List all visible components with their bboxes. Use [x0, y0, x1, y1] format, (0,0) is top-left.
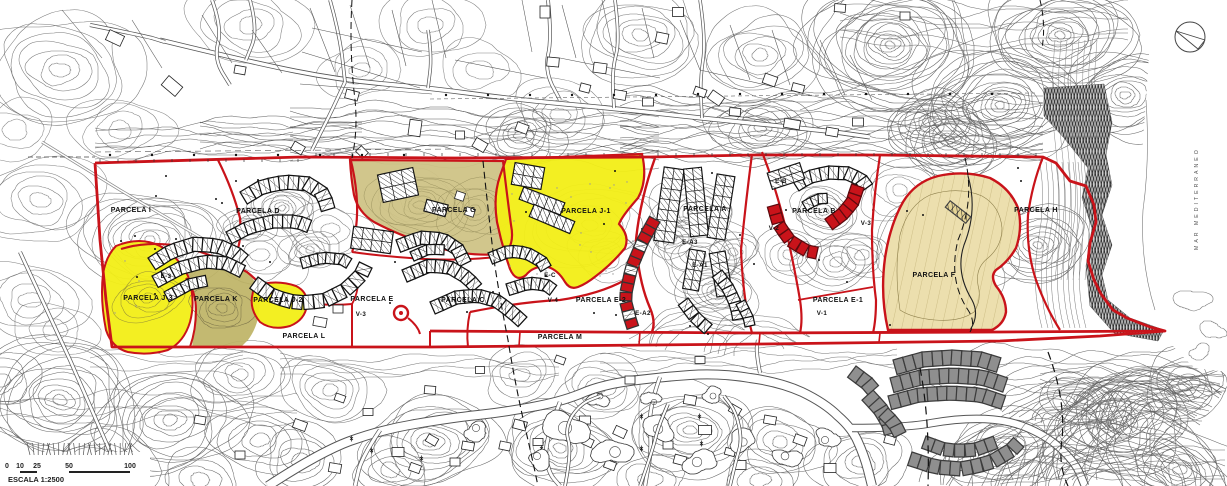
svg-text:PARCELA A: PARCELA A — [683, 206, 726, 213]
svg-text:ESCALA 1:2500: ESCALA 1:2500 — [8, 475, 64, 484]
svg-text:0: 0 — [5, 463, 9, 470]
svg-text:PARCELA L: PARCELA L — [283, 333, 326, 340]
svg-text:PARCELA E: PARCELA E — [350, 296, 393, 303]
svg-text:V-1: V-1 — [817, 310, 828, 317]
svg-text:PARCELA H: PARCELA H — [1014, 207, 1058, 214]
svg-text:E-B: E-B — [775, 178, 787, 185]
svg-text:PARCELA M: PARCELA M — [538, 334, 582, 341]
svg-text:PARCELA J-2: PARCELA J-2 — [253, 297, 303, 304]
svg-text:PARCELA F: PARCELA F — [913, 272, 956, 279]
svg-text:25: 25 — [33, 463, 41, 470]
svg-text:50: 50 — [65, 463, 73, 470]
svg-text:100: 100 — [124, 463, 136, 470]
svg-text:MAR MEDITERRANEO: MAR MEDITERRANEO — [1194, 147, 1200, 250]
svg-text:PARCELA I: PARCELA I — [111, 207, 152, 214]
svg-text:PARCELA J-1: PARCELA J-1 — [561, 208, 611, 215]
svg-text:V-2: V-2 — [769, 225, 780, 232]
svg-text:PARCELA E-1: PARCELA E-1 — [813, 297, 863, 304]
svg-text:V-3: V-3 — [861, 220, 872, 227]
svg-text:PARCELA C: PARCELA C — [441, 297, 485, 304]
svg-text:PARCELA J-3: PARCELA J-3 — [123, 295, 173, 302]
svg-text:PARCELA K: PARCELA K — [194, 296, 238, 303]
svg-text:E-A2: E-A2 — [635, 310, 651, 317]
svg-text:E-C: E-C — [544, 272, 556, 279]
svg-text:E-A1: E-A1 — [692, 262, 708, 269]
svg-text:PARCELA E-2: PARCELA E-2 — [576, 297, 626, 304]
svg-text:PARCELA G: PARCELA G — [432, 207, 476, 214]
svg-text:V-3: V-3 — [356, 311, 367, 318]
svg-text:PARCELA D: PARCELA D — [236, 208, 280, 215]
svg-text:E-A3: E-A3 — [682, 239, 698, 246]
svg-text:10: 10 — [16, 463, 24, 470]
svg-text:PARCELA B: PARCELA B — [792, 208, 836, 215]
svg-text:E-3: E-3 — [161, 273, 172, 280]
svg-text:V-4: V-4 — [548, 297, 559, 304]
